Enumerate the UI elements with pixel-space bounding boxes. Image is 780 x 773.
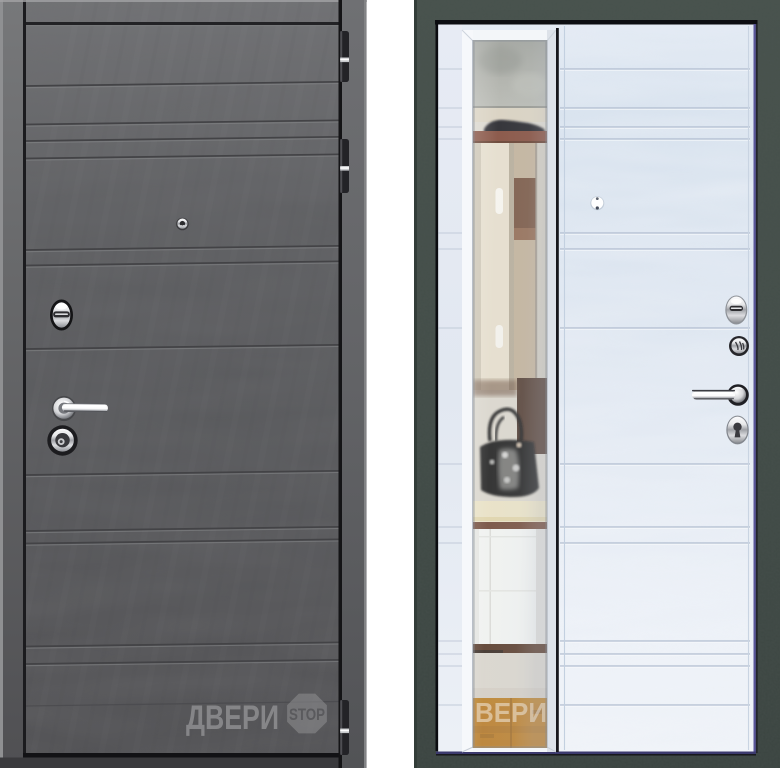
svg-text:STOP: STOP	[289, 706, 325, 724]
svg-text:ДВЕРИ: ДВЕРИ	[186, 699, 279, 737]
